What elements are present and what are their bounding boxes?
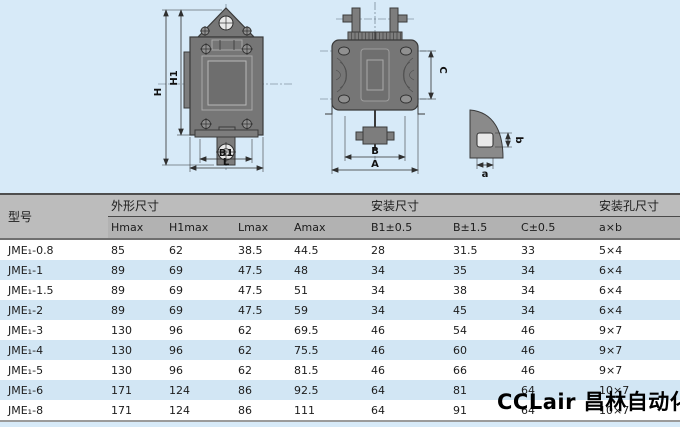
table-cell: 34 bbox=[518, 280, 596, 300]
clevis-block bbox=[356, 127, 394, 144]
dim-label-C: C bbox=[437, 66, 448, 73]
column-header-b1: B1±0.5 bbox=[368, 217, 450, 240]
slot-hole bbox=[477, 133, 493, 147]
model-cell: JME₁-2 bbox=[0, 300, 108, 320]
table-cell: 47.5 bbox=[235, 280, 291, 300]
table-cell: 124 bbox=[166, 400, 235, 420]
table-cell: 130 bbox=[108, 340, 166, 360]
table-cell: 96 bbox=[166, 360, 235, 380]
table-cell: 62 bbox=[235, 360, 291, 380]
table-cell: 6×4 bbox=[596, 300, 680, 320]
dim-label-L: L bbox=[223, 157, 230, 168]
model-cell: JME₁-0.8 bbox=[0, 239, 108, 260]
watermark: CCLair 昌林自动化 bbox=[497, 386, 680, 416]
table-cell: 75.5 bbox=[291, 340, 368, 360]
table-cell: 31.5 bbox=[450, 239, 518, 260]
table-cell: 9×7 bbox=[596, 360, 680, 380]
table-row: JME₁-3 130 96 62 69.5 46 54 46 9×7 bbox=[0, 320, 680, 340]
mount-hole-bottom-right bbox=[401, 95, 412, 103]
table-cell: 46 bbox=[368, 360, 450, 380]
mount-foot-right bbox=[418, 104, 425, 114]
table-cell: 34 bbox=[368, 280, 450, 300]
model-cell: JME₁-1 bbox=[0, 260, 108, 280]
mount-hole-top-right bbox=[401, 47, 412, 55]
dim-label-B: B bbox=[371, 146, 379, 157]
table-cell: 9×7 bbox=[596, 340, 680, 360]
table-cell: 47.5 bbox=[235, 260, 291, 280]
table-cell: 33 bbox=[518, 239, 596, 260]
model-cell: JME₁-8 bbox=[0, 400, 108, 420]
table-cell: 35 bbox=[450, 260, 518, 280]
table-cell: 46 bbox=[368, 340, 450, 360]
table-cell: 9×7 bbox=[596, 320, 680, 340]
table-row: JME₁-1 89 69 47.5 48 34 35 34 6×4 bbox=[0, 260, 680, 280]
table-cell: 6×4 bbox=[596, 280, 680, 300]
table-cell: 34 bbox=[518, 300, 596, 320]
body-side-tab bbox=[184, 52, 190, 108]
table-cell: 38.5 bbox=[235, 239, 291, 260]
table-cell: 54 bbox=[450, 320, 518, 340]
mount-hole-top-left bbox=[339, 47, 350, 55]
table-cell: 46 bbox=[368, 320, 450, 340]
column-header-b: B±1.5 bbox=[450, 217, 518, 240]
dim-label-H1: H1 bbox=[169, 70, 180, 85]
column-group-mounting-hole-dimensions: 安装孔尺寸 bbox=[596, 195, 680, 217]
table-cell: 47.5 bbox=[235, 300, 291, 320]
table-cell: 111 bbox=[291, 400, 368, 420]
technical-drawings: H H1 B1 L bbox=[0, 0, 680, 192]
datasheet-page: H H1 B1 L bbox=[0, 0, 680, 427]
table-cell: 69 bbox=[166, 300, 235, 320]
model-cell: JME₁-1.5 bbox=[0, 280, 108, 300]
table-cell: 171 bbox=[108, 400, 166, 420]
table-cell: 62 bbox=[166, 239, 235, 260]
column-group-mounting-dimensions: 安装尺寸 bbox=[368, 195, 596, 217]
table-cell: 51 bbox=[291, 280, 368, 300]
column-header-c: C±0.5 bbox=[518, 217, 596, 240]
dim-label-a: a bbox=[482, 169, 489, 180]
table-row: JME₁-2 89 69 47.5 59 34 45 34 6×4 bbox=[0, 300, 680, 320]
mount-foot-left bbox=[325, 104, 332, 114]
table-cell: 85 bbox=[108, 239, 166, 260]
table-row: JME₁-5 130 96 62 81.5 46 66 46 9×7 bbox=[0, 360, 680, 380]
table-cell: 130 bbox=[108, 360, 166, 380]
table-cell: 62 bbox=[235, 340, 291, 360]
table-cell: 89 bbox=[108, 260, 166, 280]
table-cell: 34 bbox=[368, 300, 450, 320]
table-cell: 6×4 bbox=[596, 260, 680, 280]
mounting-hole-detail-drawing: b a bbox=[470, 110, 524, 180]
table-cell: 86 bbox=[235, 380, 291, 400]
table-cell: 69 bbox=[166, 280, 235, 300]
table-cell: 64 bbox=[368, 380, 450, 400]
mount-hole-bottom-left bbox=[339, 95, 350, 103]
table-cell: 34 bbox=[518, 260, 596, 280]
table-cell: 64 bbox=[368, 400, 450, 420]
side-view-drawing: C B A bbox=[320, 2, 448, 174]
table-row: JME₁-4 130 96 62 75.5 46 60 46 9×7 bbox=[0, 340, 680, 360]
model-cell: JME₁-5 bbox=[0, 360, 108, 380]
dim-label-A: A bbox=[371, 159, 379, 170]
column-header-lmax: Lmax bbox=[235, 217, 291, 240]
table-cell: 38 bbox=[450, 280, 518, 300]
table-cell: 62 bbox=[235, 320, 291, 340]
table-cell: 96 bbox=[166, 340, 235, 360]
front-view-drawing: H H1 B1 L bbox=[153, 4, 294, 172]
column-header-h1max: H1max bbox=[166, 217, 235, 240]
table-cell: 46 bbox=[518, 340, 596, 360]
table-cell: 89 bbox=[108, 300, 166, 320]
table-cell: 34 bbox=[368, 260, 450, 280]
table-cell: 28 bbox=[368, 239, 450, 260]
column-header-model: 型号 bbox=[0, 195, 108, 239]
table-cell: 96 bbox=[166, 320, 235, 340]
table-cell: 89 bbox=[108, 280, 166, 300]
pole-face bbox=[208, 61, 246, 105]
table-cell: 81.5 bbox=[291, 360, 368, 380]
table-cell: 45 bbox=[450, 300, 518, 320]
column-header-hmax: Hmax bbox=[108, 217, 166, 240]
table-cell: 130 bbox=[108, 320, 166, 340]
dim-label-b: b bbox=[513, 136, 524, 143]
model-cell: JME₁-3 bbox=[0, 320, 108, 340]
column-header-amax: Amax bbox=[291, 217, 368, 240]
table-cell: 60 bbox=[450, 340, 518, 360]
table-cell: 171 bbox=[108, 380, 166, 400]
table-cell: 66 bbox=[450, 360, 518, 380]
dim-label-H: H bbox=[153, 88, 164, 96]
table-cell: 46 bbox=[518, 320, 596, 340]
table-cell: 59 bbox=[291, 300, 368, 320]
column-header-axb: a×b bbox=[596, 217, 680, 240]
model-cell: JME₁-4 bbox=[0, 340, 108, 360]
table-row: JME₁-1.5 89 69 47.5 51 34 38 34 6×4 bbox=[0, 280, 680, 300]
table-cell: 69.5 bbox=[291, 320, 368, 340]
center-channel bbox=[361, 49, 389, 101]
table-cell: 86 bbox=[235, 400, 291, 420]
column-group-outline-dimensions: 外形尺寸 bbox=[108, 195, 368, 217]
armature-plate bbox=[195, 130, 258, 137]
table-cell: 92.5 bbox=[291, 380, 368, 400]
table-cell: 69 bbox=[166, 260, 235, 280]
model-cell: JME₁-6 bbox=[0, 380, 108, 400]
table-cell: 124 bbox=[166, 380, 235, 400]
table-cell: 46 bbox=[518, 360, 596, 380]
table-cell: 5×4 bbox=[596, 239, 680, 260]
table-cell: 48 bbox=[291, 260, 368, 280]
table-row: JME₁-0.8 85 62 38.5 44.5 28 31.5 33 5×4 bbox=[0, 239, 680, 260]
table-cell: 44.5 bbox=[291, 239, 368, 260]
